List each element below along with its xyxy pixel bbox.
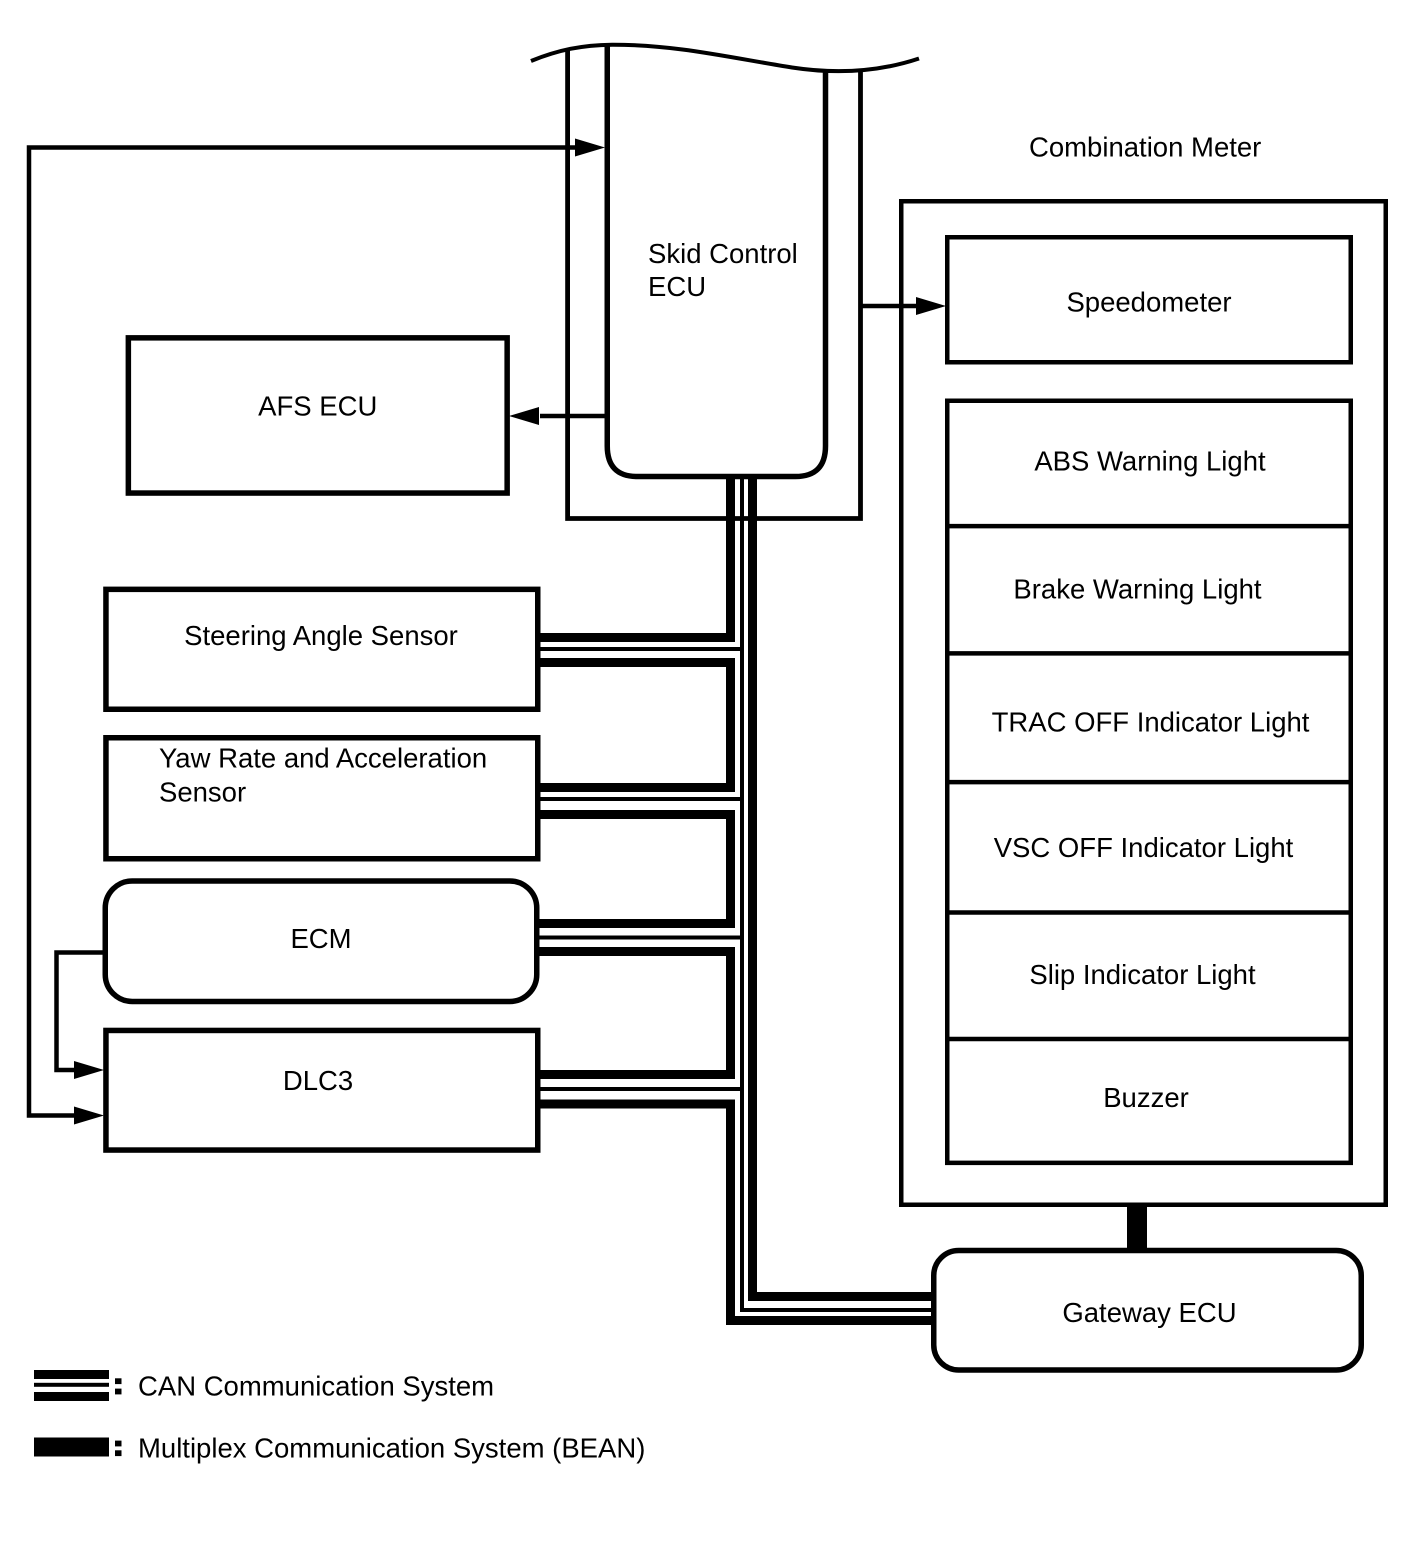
svg-text:Slip Indicator Light: Slip Indicator Light [1029, 959, 1256, 990]
svg-text:Steering Angle Sensor: Steering Angle Sensor [184, 620, 458, 651]
svg-text:ECU: ECU [648, 271, 706, 302]
svg-text:VSC OFF Indicator Light: VSC OFF Indicator Light [994, 832, 1294, 863]
svg-text:ECM: ECM [290, 923, 351, 954]
svg-text:Speedometer: Speedometer [1066, 287, 1231, 318]
svg-text:TRAC OFF Indicator Light: TRAC OFF Indicator Light [992, 707, 1310, 738]
svg-text:Buzzer: Buzzer [1103, 1082, 1189, 1113]
svg-text:CAN Communication System: CAN Communication System [138, 1370, 494, 1401]
svg-text:AFS ECU: AFS ECU [258, 391, 377, 422]
svg-text:ABS Warning Light: ABS Warning Light [1034, 446, 1266, 477]
svg-text:Multiplex Communication System: Multiplex Communication System (BEAN) [138, 1433, 645, 1464]
svg-text:Combination Meter: Combination Meter [1029, 132, 1261, 163]
svg-text:Gateway ECU: Gateway ECU [1062, 1297, 1236, 1328]
svg-text:Skid Control: Skid Control [648, 238, 798, 269]
svg-text:Yaw Rate and Acceleration: Yaw Rate and Acceleration [159, 743, 487, 774]
svg-text:Sensor: Sensor [159, 777, 246, 808]
svg-text:Brake Warning Light: Brake Warning Light [1013, 573, 1261, 604]
svg-text:DLC3: DLC3 [283, 1065, 353, 1096]
